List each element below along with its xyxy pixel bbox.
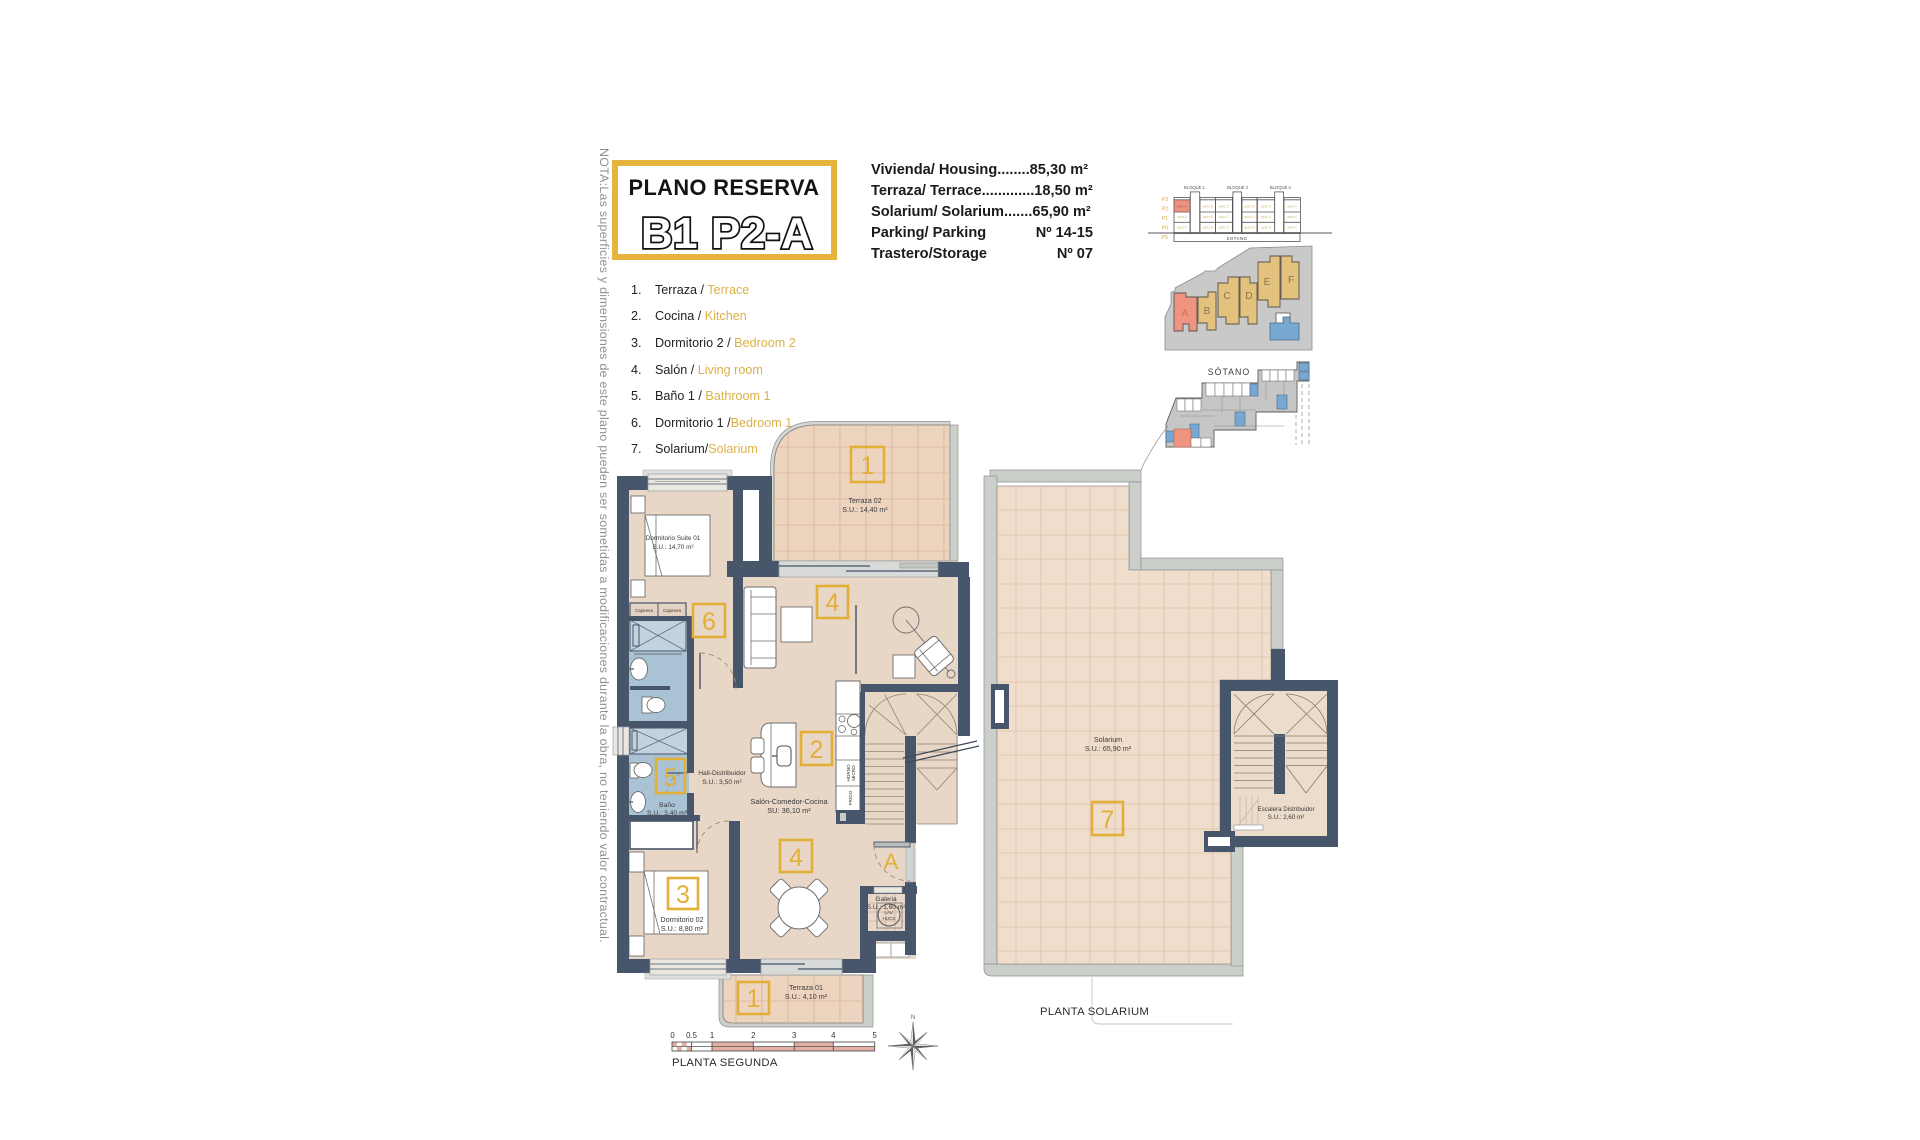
svg-text:2: 2 [751, 1031, 755, 1040]
svg-text:S.U.: 8,80 m²: S.U.: 8,80 m² [661, 924, 704, 933]
svg-text:0: 0 [670, 1031, 675, 1040]
svg-text:B: B [1204, 306, 1211, 317]
svg-text:Cocina / Kitchen: Cocina / Kitchen [655, 309, 747, 323]
svg-text:S.U.: 3,50 m²: S.U.: 3,50 m² [702, 779, 742, 786]
svg-text:4.: 4. [631, 363, 642, 377]
svg-text:S.U.: 14,40 m²: S.U.: 14,40 m² [842, 507, 888, 514]
svg-text:Solarium/Solarium: Solarium/Solarium [655, 442, 758, 456]
svg-text:S.U.: 3,40 m²: S.U.: 3,40 m² [647, 810, 688, 817]
svg-text:apto B: apto B [1203, 205, 1214, 209]
svg-text:Escalera Distribuidor: Escalera Distribuidor [1257, 806, 1314, 813]
svg-text:PLANTA SOLARIUM: PLANTA SOLARIUM [1040, 1006, 1149, 1018]
svg-text:Vivienda/ Housing........85,30: Vivienda/ Housing........85,30 m² [871, 162, 1088, 178]
svg-text:BLOQUE 2: BLOQUE 2 [1227, 185, 1249, 190]
svg-text:apto B: apto B [1203, 215, 1214, 219]
svg-text:Dormitorio Suite 01: Dormitorio Suite 01 [646, 535, 701, 542]
svg-text:P3: P3 [1162, 197, 1168, 203]
svg-text:P0: P0 [1162, 226, 1168, 232]
svg-text:Hall-Distribuidor: Hall-Distribuidor [698, 770, 746, 777]
svg-text:apto F: apto F [1287, 226, 1298, 230]
svg-text:3.: 3. [631, 336, 642, 350]
svg-text:Nº 07: Nº 07 [1057, 246, 1093, 262]
svg-text:FRIGO: FRIGO [848, 790, 853, 805]
svg-text:Parking/ Parking: Parking/ Parking [871, 225, 986, 241]
svg-text:7: 7 [1101, 806, 1115, 834]
svg-text:Trastero/Storage: Trastero/Storage [871, 246, 987, 262]
svg-text:apto E: apto E [1261, 205, 1272, 209]
svg-text:Dormitorio 2 / Bedroom 2: Dormitorio 2 / Bedroom 2 [655, 336, 796, 350]
svg-text:5: 5 [664, 764, 678, 792]
svg-text:SU: 36,10 m²: SU: 36,10 m² [767, 806, 811, 815]
svg-text:BLOQUE 1: BLOQUE 1 [1184, 185, 1206, 190]
svg-text:apto C: apto C [1219, 226, 1230, 230]
svg-text:6.: 6. [631, 416, 642, 430]
svg-text:3: 3 [792, 1031, 796, 1040]
svg-text:Cajonera: Cajonera [663, 608, 681, 613]
svg-text:S.U.: 4,10 m²: S.U.: 4,10 m² [785, 992, 828, 1001]
svg-text:C: C [1223, 291, 1230, 302]
svg-text:LAV.: LAV. [884, 910, 893, 915]
svg-text:B1 P2-A: B1 P2-A [641, 209, 813, 258]
svg-text:Baño 1 / Bathroom 1: Baño 1 / Bathroom 1 [655, 389, 771, 403]
svg-text:1: 1 [861, 452, 875, 480]
svg-text:1: 1 [747, 985, 761, 1013]
svg-text:Terraza / Terrace: Terraza / Terrace [655, 283, 749, 297]
svg-text:apto A: apto A [1177, 215, 1188, 219]
svg-text:2: 2 [810, 736, 824, 764]
svg-text:4: 4 [789, 844, 803, 872]
svg-text:6: 6 [702, 608, 716, 636]
svg-text:2.: 2. [631, 309, 642, 323]
svg-text:7.: 7. [631, 442, 642, 456]
svg-text:3: 3 [676, 881, 690, 909]
svg-text:Salón-Comedor-Cocina: Salón-Comedor-Cocina [750, 797, 828, 806]
svg-text:PS: PS [1161, 235, 1168, 241]
svg-text:1.: 1. [631, 283, 642, 297]
svg-text:Terraza 01: Terraza 01 [789, 983, 823, 992]
svg-text:Baño: Baño [659, 802, 675, 809]
svg-text:apto C: apto C [1219, 205, 1230, 209]
svg-text:apto F: apto F [1287, 215, 1298, 219]
svg-text:HUCS: HUCS [882, 916, 895, 921]
svg-text:apto C: apto C [1219, 215, 1230, 219]
svg-text:apto E: apto E [1261, 215, 1272, 219]
svg-text:4: 4 [831, 1031, 836, 1040]
svg-text:PLANTA SEGUNDA: PLANTA SEGUNDA [672, 1057, 778, 1069]
svg-text:P1: P1 [1162, 216, 1168, 222]
svg-text:BLOQUE 3: BLOQUE 3 [1270, 185, 1292, 190]
svg-text:1: 1 [710, 1031, 714, 1040]
svg-text:Cajonera: Cajonera [635, 608, 653, 613]
svg-text:D: D [1245, 291, 1252, 302]
svg-text:5: 5 [873, 1031, 878, 1040]
svg-text:P2: P2 [1162, 207, 1168, 213]
svg-text:Solarium/ Solarium.......65,90: Solarium/ Solarium.......65,90 m² [871, 204, 1091, 220]
svg-text:apto D: apto D [1244, 215, 1255, 219]
svg-text:Terraza/ Terrace.............1: Terraza/ Terrace.............18,50 m² [871, 183, 1093, 199]
svg-text:Solarium: Solarium [1094, 735, 1122, 744]
svg-text:SÓTANO: SÓTANO [1208, 367, 1251, 377]
svg-text:A: A [1182, 308, 1189, 319]
svg-text:NOTA:Las superficies y dimensi: NOTA:Las superficies y dimensiones de es… [597, 148, 611, 943]
svg-text:Galeria: Galeria [875, 896, 897, 903]
svg-text:PLANO RESERVA: PLANO RESERVA [629, 175, 820, 200]
svg-text:S.U.: 14,70 m²: S.U.: 14,70 m² [652, 544, 693, 551]
svg-text:apto A: apto A [1177, 226, 1188, 230]
svg-text:apto B: apto B [1203, 226, 1214, 230]
svg-text:S.U.: 65,90 m²: S.U.: 65,90 m² [1085, 744, 1132, 753]
svg-text:Salón / Living room: Salón / Living room [655, 363, 763, 377]
svg-text:apto F: apto F [1287, 205, 1298, 209]
svg-text:apto A: apto A [1177, 205, 1188, 209]
svg-text:apto E: apto E [1261, 226, 1272, 230]
svg-text:MICRO: MICRO [851, 765, 856, 781]
svg-text:Nº 14-15: Nº 14-15 [1036, 225, 1093, 241]
svg-text:S.U.: 2,60 m²: S.U.: 2,60 m² [1268, 814, 1304, 821]
svg-text:Dormitorio 1 /Bedroom 1: Dormitorio 1 /Bedroom 1 [655, 416, 792, 430]
svg-text:5.: 5. [631, 389, 642, 403]
svg-text:N: N [911, 1015, 915, 1021]
svg-text:4: 4 [826, 589, 840, 617]
svg-text:SOTANO: SOTANO [1227, 236, 1248, 241]
svg-text:apto D: apto D [1244, 205, 1255, 209]
svg-text:Dormitorio 02: Dormitorio 02 [660, 915, 703, 924]
svg-text:A: A [884, 849, 899, 874]
svg-text:F: F [1288, 275, 1294, 286]
svg-text:E: E [1264, 277, 1271, 288]
svg-text:0.5: 0.5 [686, 1031, 698, 1040]
svg-text:apto D: apto D [1244, 226, 1255, 230]
svg-text:Terraza 02: Terraza 02 [848, 498, 881, 505]
